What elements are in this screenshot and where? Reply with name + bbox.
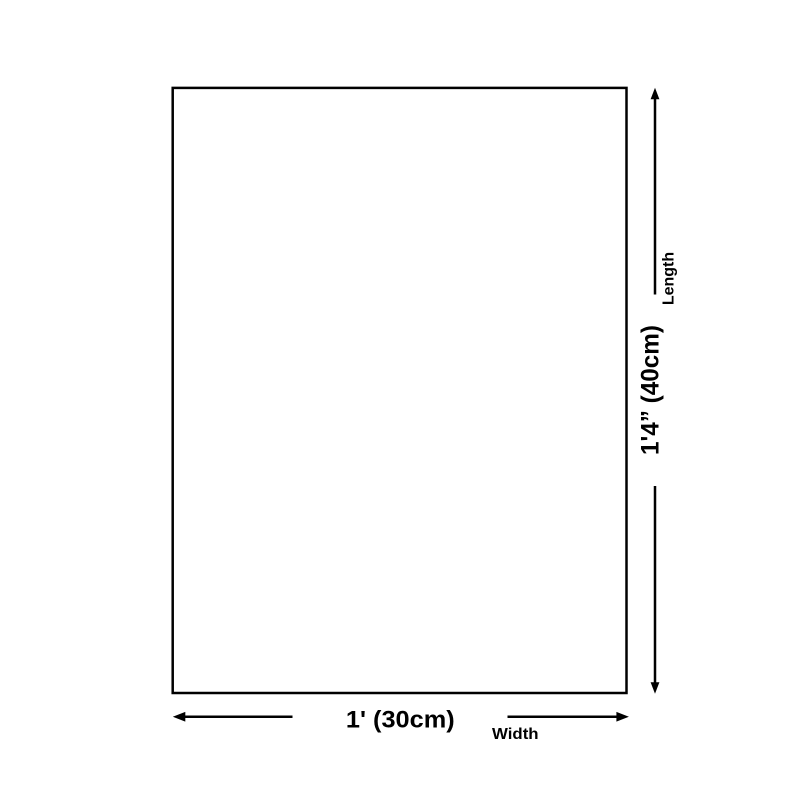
svg-text:1'4” (40cm): 1'4” (40cm) (636, 325, 664, 455)
svg-text:Length: Length (660, 252, 677, 305)
svg-text:1' (30cm): 1' (30cm) (346, 707, 455, 734)
svg-text:Width: Width (492, 726, 539, 743)
